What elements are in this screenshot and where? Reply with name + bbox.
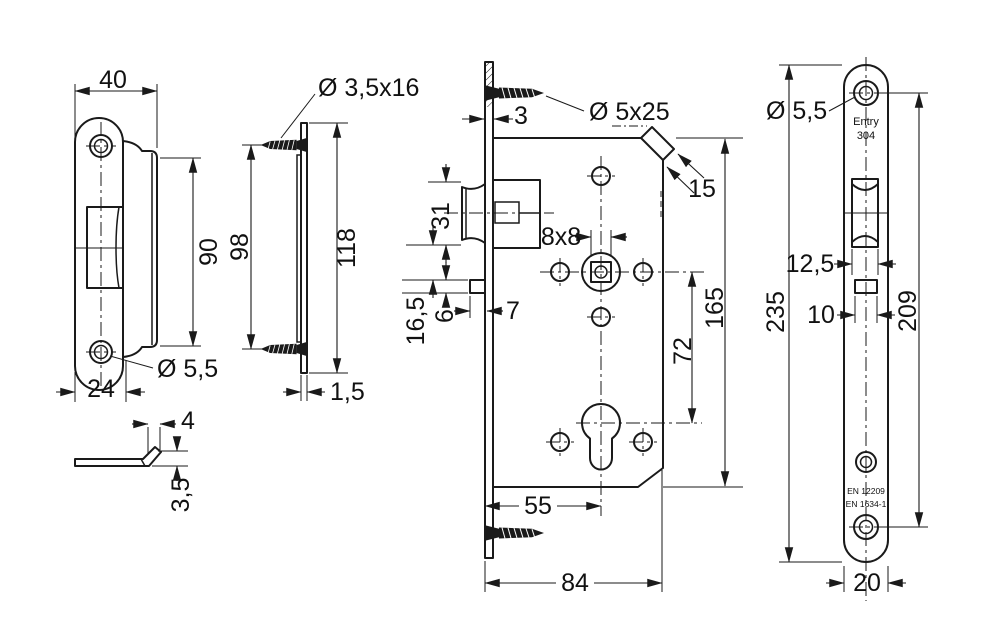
dim-3-5: 3,5 [152,437,195,512]
latch-bolt [462,180,540,248]
side-plate-outline [301,123,307,373]
dim-90: 90 [160,158,223,346]
dim-40: 40 [75,66,157,148]
dim-72: 72 [669,272,697,423]
view-lock-body: Ø 5x25 3 15 [402,62,743,597]
lock-screw-top [486,86,544,101]
side-screw-text: Ø 3,5x16 [318,74,419,102]
lock-screw-text: Ø 5x25 [589,98,670,126]
technical-drawing-page: 40 90 24 Ø 5,5 4 [0,0,1000,643]
dim-90-text: 90 [195,238,223,266]
dim-20: 20 [826,566,906,597]
dim-118: 118 [309,123,361,373]
dim-12-5: 12,5 [786,249,896,278]
dim-24-text: 24 [87,375,115,403]
dim-20-text: 20 [853,569,881,597]
dim-16-5-text: 16,5 [402,297,430,346]
side-lip-outline [297,155,301,342]
view-strike-plate-side: Ø 3,5x16 98 118 1,5 [226,74,419,406]
label-lock-screw: Ø 5x25 [546,96,670,126]
dim-3: 3 [462,102,528,130]
dim-84-text: 84 [561,569,589,597]
dim-7-text: 7 [506,297,520,325]
dim-118-text: 118 [333,228,361,268]
dim-7: 7 [454,296,520,325]
dim-6: 6 [431,262,459,323]
dim-31-text: 31 [427,202,455,230]
lip-bend-line [141,459,145,466]
view-strike-plate-front: 40 90 24 Ø 5,5 [56,66,223,403]
dim-3-text: 3 [514,102,528,130]
faceplate-latch-opening [845,179,887,247]
dim-1-5: 1,5 [283,375,365,406]
lock-screw-bottom [486,526,544,541]
dim-98: 98 [226,145,264,349]
strike-hole-dia-text: Ø 5,5 [157,355,218,383]
brand-304-text: 304 [857,130,875,142]
lock-drawing-svg: 40 90 24 Ø 5,5 4 [0,0,1000,643]
side-screw-bottom [261,342,307,356]
dim-10-text: 10 [807,301,835,329]
aux-bolt [470,280,485,293]
faceplate-hole-dia-text: Ø 5,5 [766,97,827,125]
dim-40-text: 40 [99,66,127,94]
lock-centerlines [540,156,706,516]
dim-209-text: 209 [894,290,922,332]
dim-12-5-text: 12,5 [786,250,835,278]
cert-en12209-text: EN 12209 [847,486,885,496]
dim-8x8: 8x8 [541,223,627,257]
dim-15-text: 15 [688,175,716,203]
dim-8x8-text: 8x8 [541,223,581,251]
dim-4: 4 [132,407,195,454]
view-lip-detail: 4 3,5 [75,407,195,512]
label-faceplate-hole-dia: Ø 5,5 [766,97,855,125]
dim-55-text: 55 [524,492,552,520]
dim-4-text: 4 [181,407,195,435]
dim-209: 209 [879,93,928,527]
dim-10: 10 [807,296,895,329]
side-screw-top [261,138,307,152]
brand-entry-text: Entry [853,116,879,128]
faceplate-section [485,62,493,558]
cert-en1634-text: EN 1634-1 [846,499,887,509]
dim-15: 15 [667,154,716,203]
dim-31: 31 [406,164,461,263]
view-faceplate-front: Entry 304 EN 12209 EN 1634-1 Ø 5,5 12,5 [762,57,928,601]
dim-3-5-text: 3,5 [167,478,195,513]
dim-55: 55 [485,492,601,520]
dim-98-text: 98 [226,233,254,261]
dim-72-text: 72 [669,337,697,365]
dim-165-text: 165 [701,287,729,329]
dim-235-text: 235 [762,291,790,333]
dim-1-5-text: 1,5 [330,378,365,406]
